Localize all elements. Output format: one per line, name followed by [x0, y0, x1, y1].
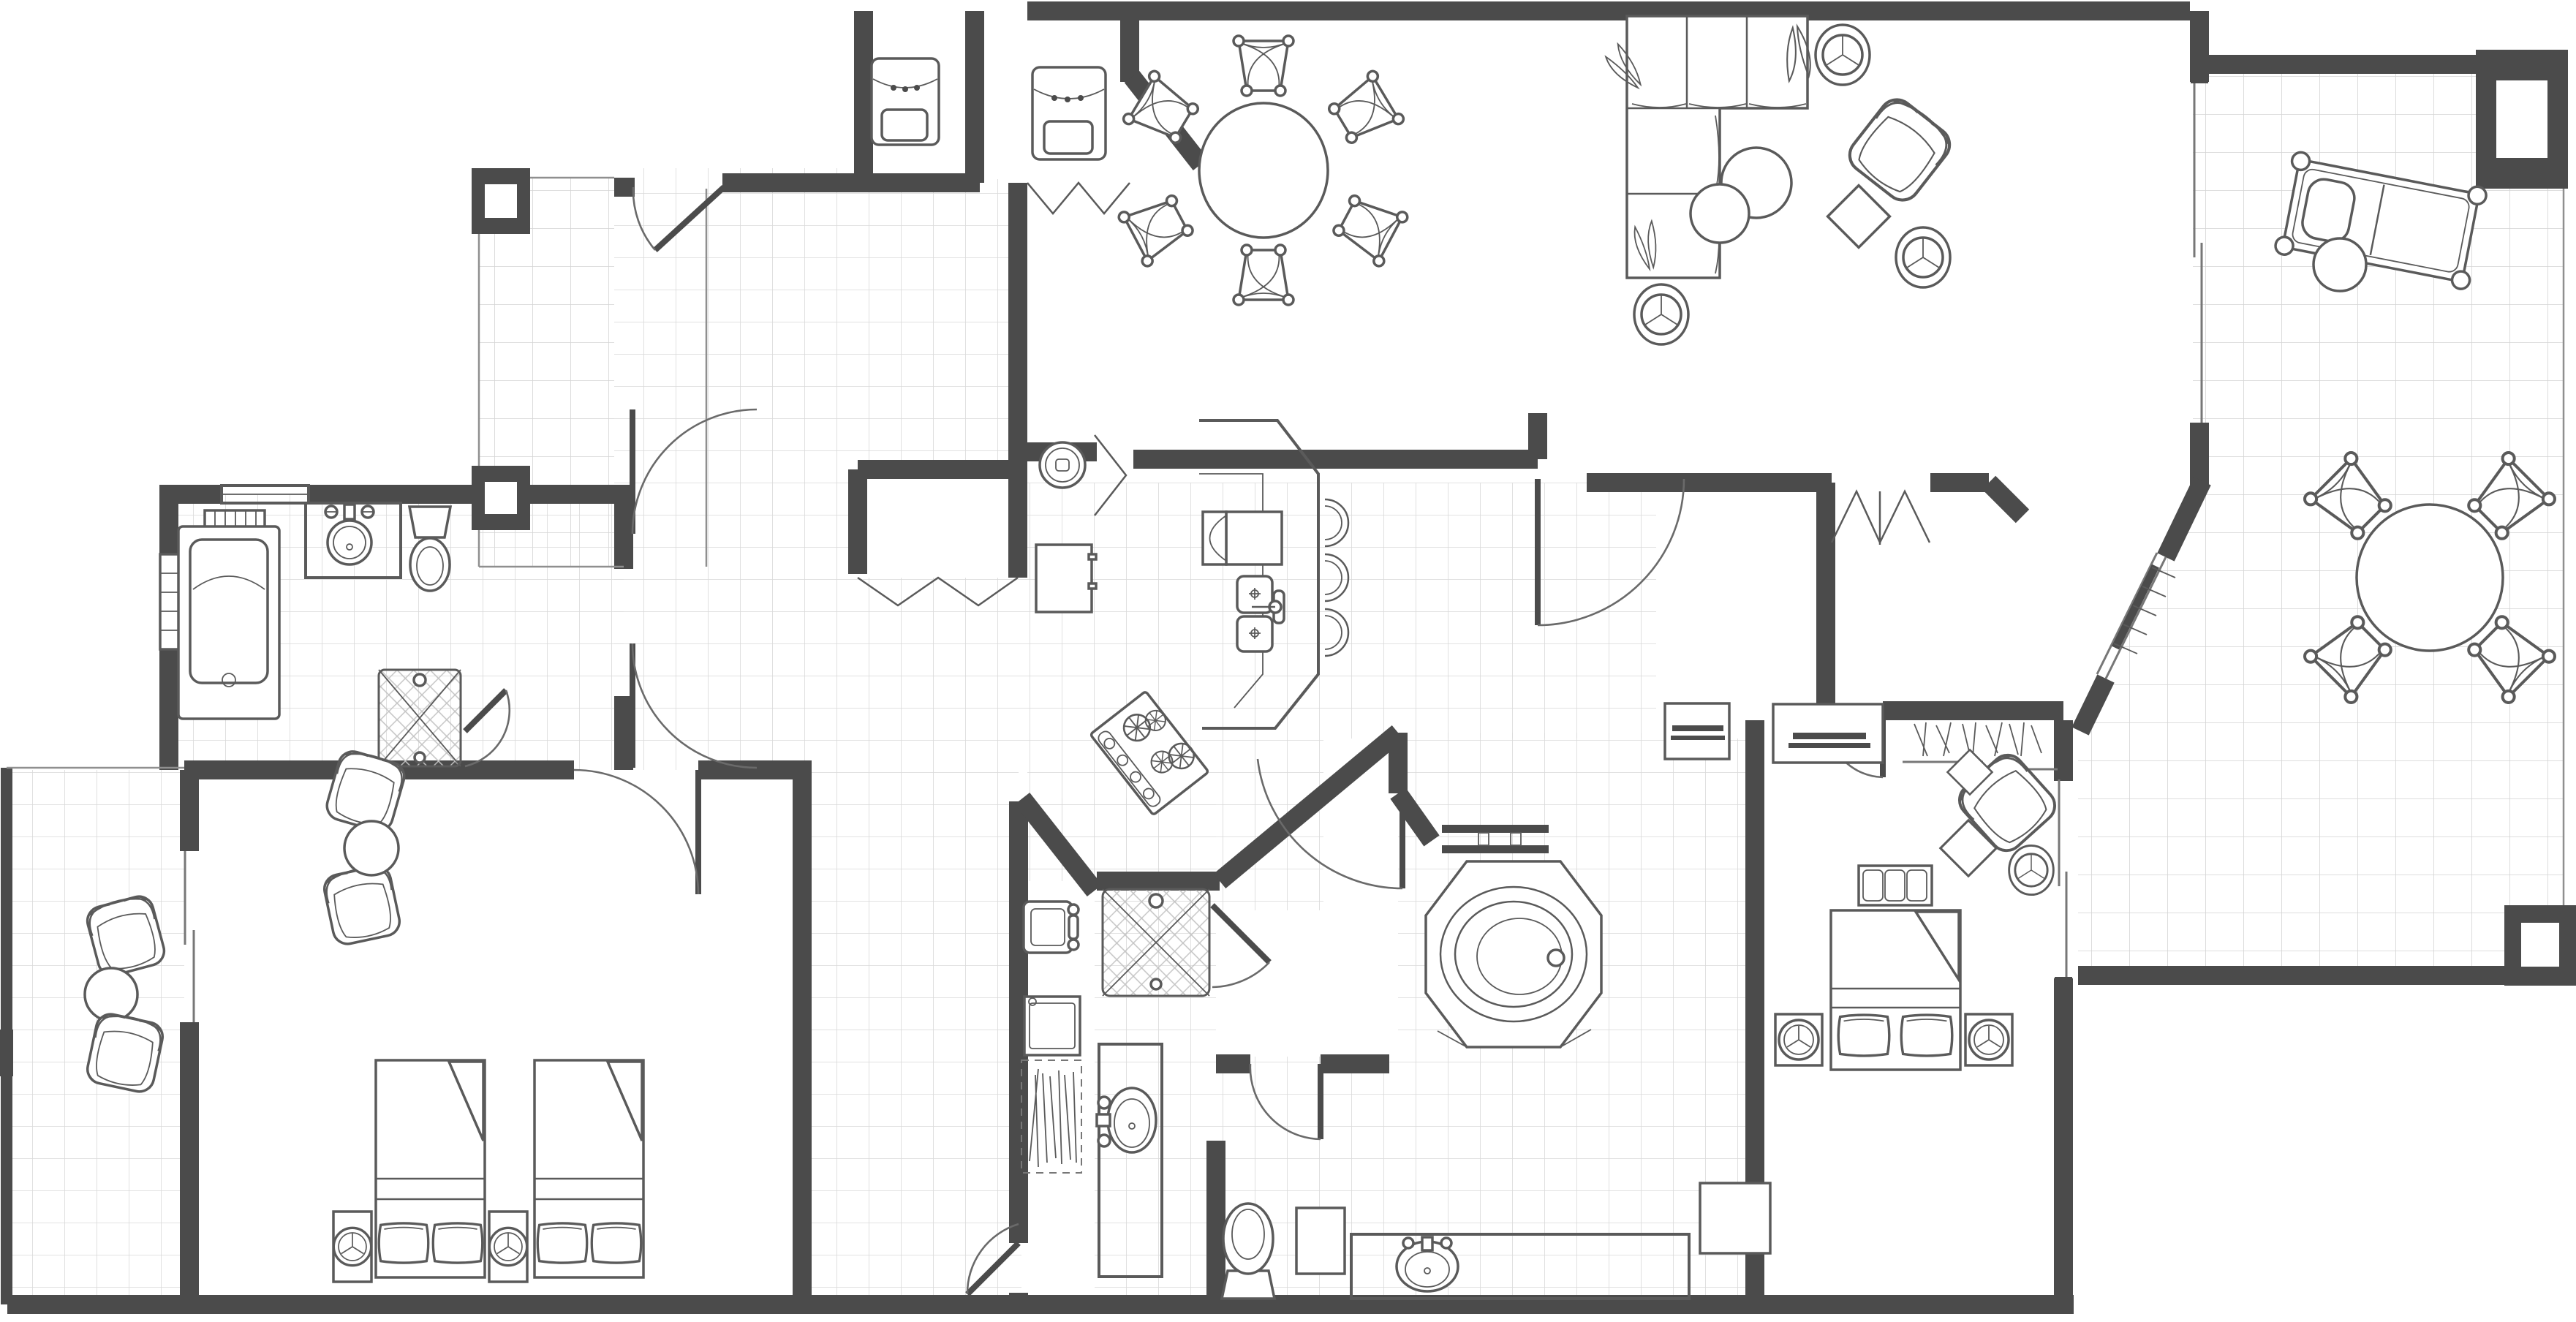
- patio-table: [85, 968, 137, 1021]
- jetted-tub: [178, 526, 279, 719]
- dining-chair: [1234, 36, 1293, 96]
- garden-tub: [1426, 861, 1601, 1047]
- bed-double: [376, 1060, 485, 1277]
- porch-column: [472, 466, 530, 530]
- hamper: [1296, 1208, 1345, 1274]
- toilet: [409, 507, 450, 591]
- master-double-doors[interactable]: [1832, 491, 1930, 545]
- nightstand: [333, 1212, 371, 1282]
- lamp-table: [1896, 227, 1950, 287]
- washer-dryer: [1024, 997, 1080, 1055]
- utility-sink: [1024, 902, 1079, 953]
- corridor-tile: [812, 770, 1019, 1304]
- shower: [379, 670, 461, 766]
- toilet: [1222, 1204, 1274, 1299]
- side-table: [2314, 238, 2366, 291]
- lamp-table: [2009, 845, 2054, 894]
- air-handler-cabinet: [872, 58, 939, 145]
- towel-shelf: [1665, 703, 1729, 759]
- washer-closet: [1040, 442, 1085, 488]
- balcony-column: [2476, 50, 2568, 189]
- nightstand: [1775, 1014, 1822, 1065]
- dishwasher: [1203, 512, 1282, 564]
- floor-plan-canvas: [0, 0, 2576, 1322]
- foot-bench: [1859, 866, 1932, 905]
- hall-tile: [1323, 459, 1656, 739]
- floor-plan-page: [0, 0, 2576, 1322]
- bath2-shower-door[interactable]: [1212, 905, 1269, 987]
- balcony-table: [2357, 505, 2503, 651]
- dining-table: [1199, 103, 1328, 238]
- shower: [1103, 889, 1209, 996]
- balcony-column: [2504, 905, 2576, 986]
- nightstand: [489, 1212, 527, 1282]
- lamp-table: [1816, 25, 1870, 85]
- lounge-chair: [85, 1011, 165, 1095]
- lamp-table: [1634, 284, 1688, 344]
- side-table: [344, 821, 399, 875]
- patio-column: [0, 1030, 13, 1076]
- porch-column: [472, 168, 530, 234]
- bed-double: [535, 1060, 643, 1277]
- dresser-tv: [1773, 704, 1883, 763]
- dining-chair: [1234, 245, 1293, 305]
- refrigerator: [1036, 545, 1096, 612]
- armchair: [322, 864, 402, 947]
- nightstand: [1965, 1014, 2012, 1065]
- king-bed: [1831, 910, 1960, 1070]
- water-heater-cabinet: [1032, 67, 1106, 159]
- accent-table: [1700, 1183, 1770, 1253]
